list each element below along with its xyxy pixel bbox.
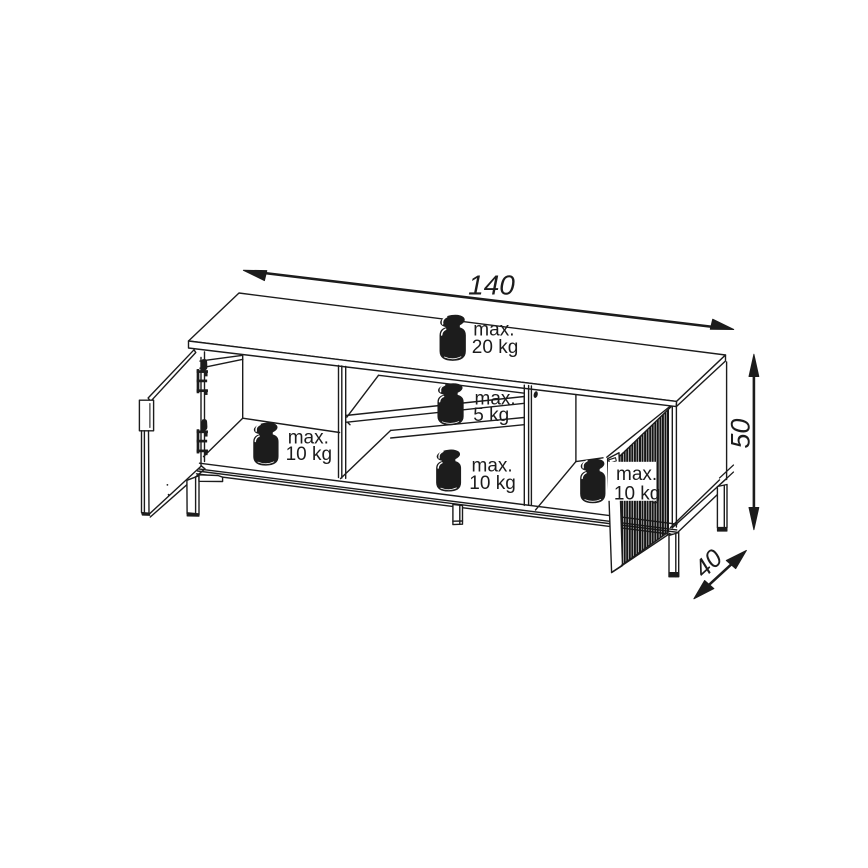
svg-text:max.: max. bbox=[616, 464, 657, 485]
svg-text:10 kg: 10 kg bbox=[469, 473, 515, 494]
svg-text:10 kg: 10 kg bbox=[614, 483, 660, 504]
svg-text:5 kg: 5 kg bbox=[473, 405, 509, 426]
svg-text:20 kg: 20 kg bbox=[472, 337, 518, 358]
svg-text:50: 50 bbox=[726, 419, 756, 449]
svg-text:10 kg: 10 kg bbox=[286, 444, 332, 465]
svg-text:140: 140 bbox=[468, 270, 515, 301]
